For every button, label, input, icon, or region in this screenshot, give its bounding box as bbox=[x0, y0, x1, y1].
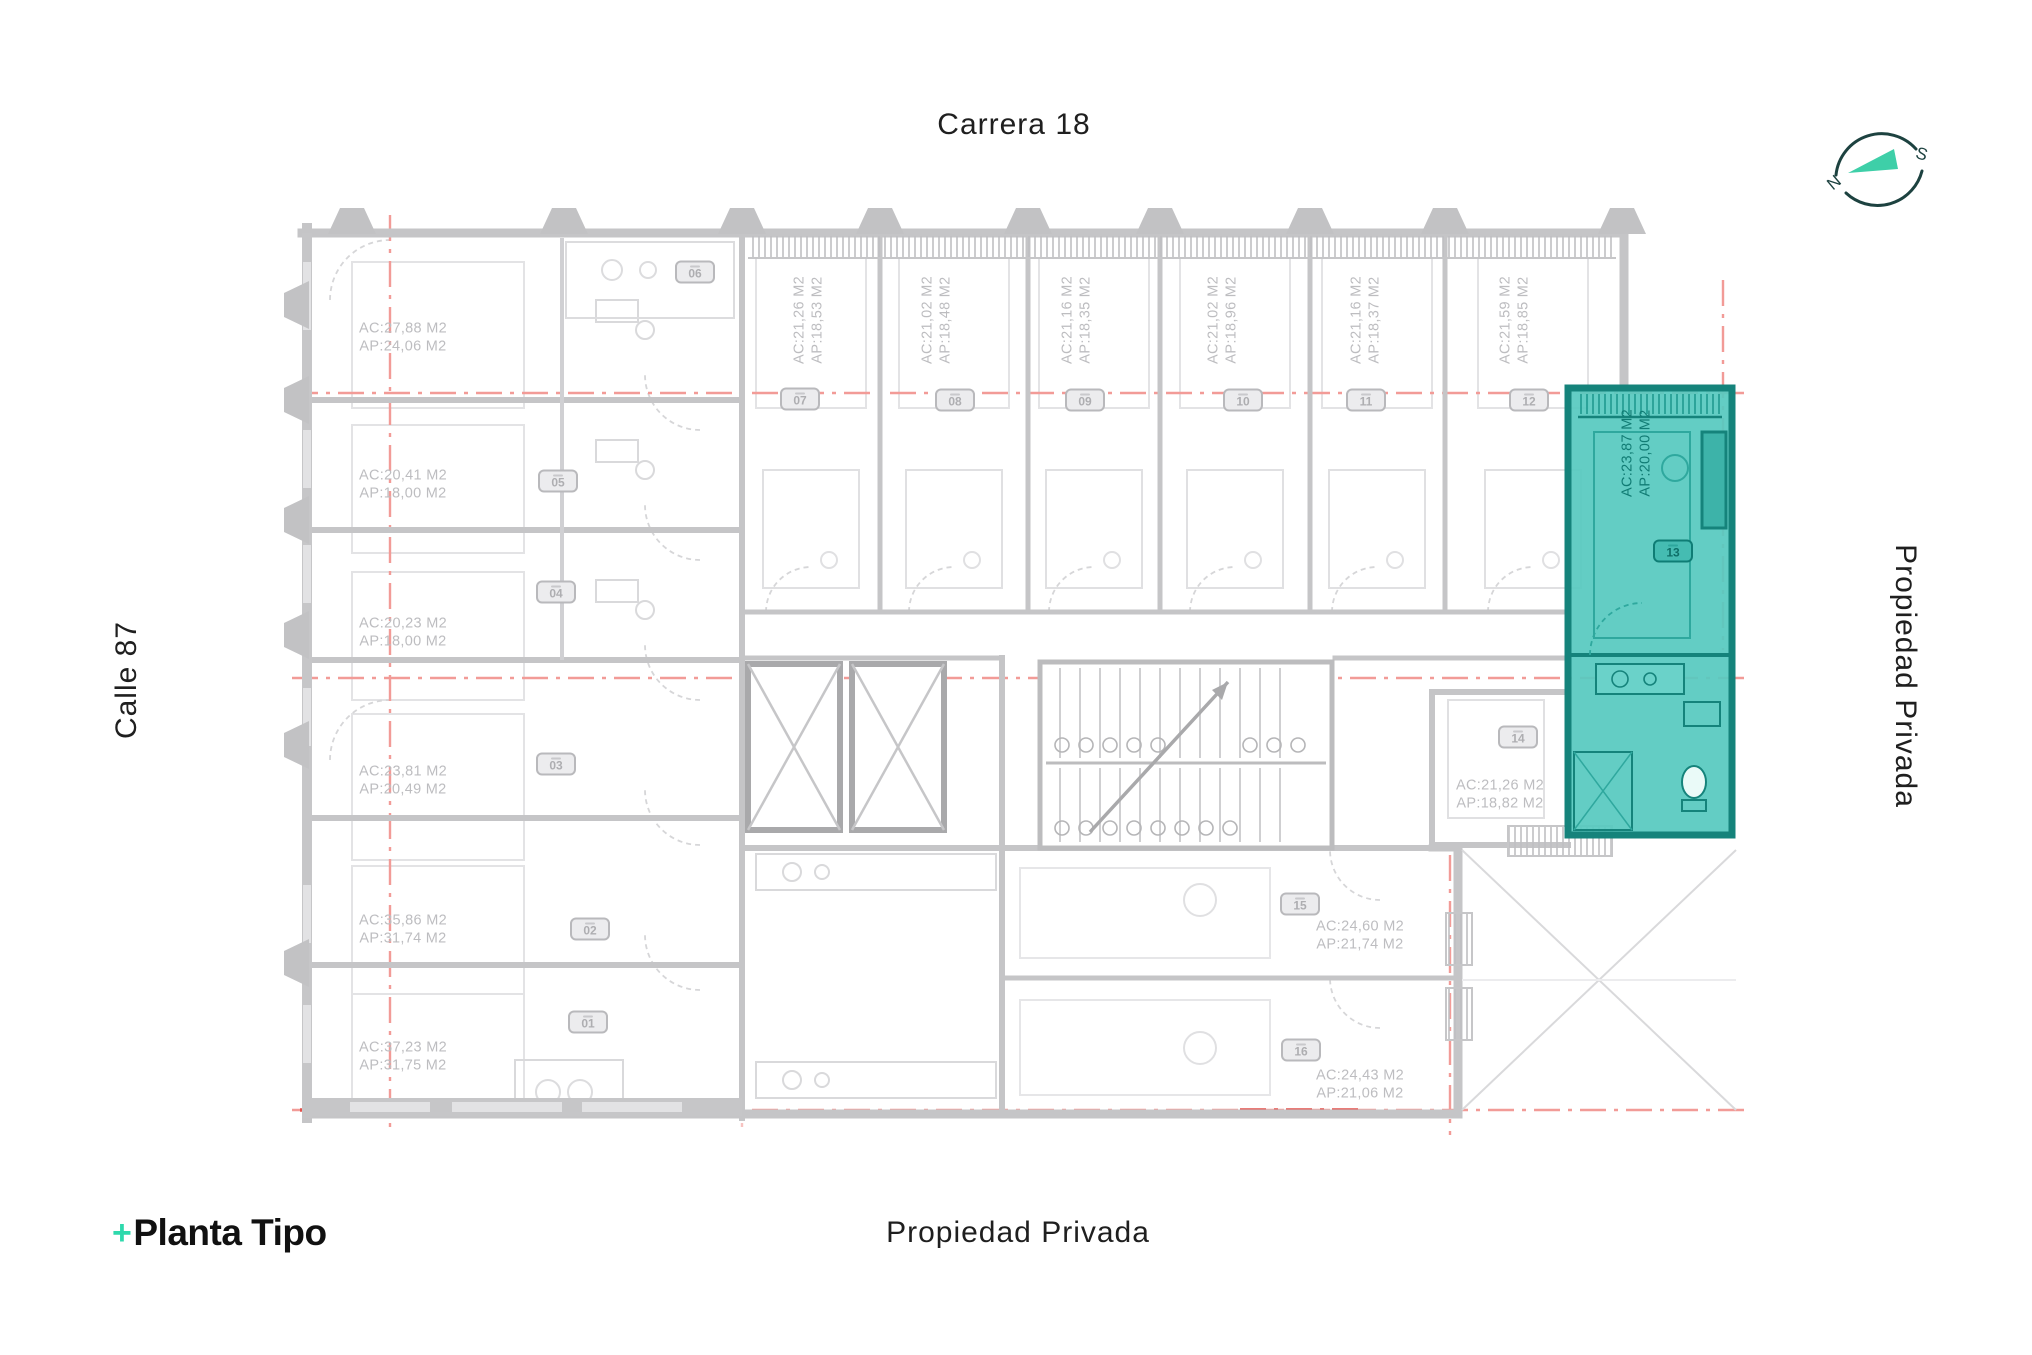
compass-needle bbox=[1848, 149, 1898, 173]
unit-01-areas: AC:37,23 M2AP:31,75 M2 bbox=[359, 1040, 447, 1075]
unit-02-badge[interactable]: 02 bbox=[570, 918, 610, 941]
unit-02-areas: AC:35,86 M2AP:31,74 M2 bbox=[359, 913, 447, 948]
unit-07-areas: AC:21,26 M2AP:18,53 M2 bbox=[792, 276, 827, 364]
unit-12-areas: AC:21,59 M2AP:18,85 M2 bbox=[1498, 276, 1533, 364]
unit-13-region[interactable] bbox=[1561, 381, 1739, 842]
unit-12-badge[interactable]: 12 bbox=[1509, 389, 1549, 412]
unit-08-badge[interactable]: 08 bbox=[935, 389, 975, 412]
void-cross bbox=[1462, 850, 1736, 1110]
unit-05-areas: AC:20,41 M2AP:18,00 M2 bbox=[359, 468, 447, 503]
unit-03-badge[interactable]: 03 bbox=[536, 753, 576, 776]
unit-05-badge[interactable]: 05 bbox=[538, 470, 578, 493]
unit-11-areas: AC:21,16 M2AP:18,37 M2 bbox=[1349, 276, 1384, 364]
floor-plan-page: Carrera 18 Calle 87 Propiedad Privada Pr… bbox=[0, 0, 2032, 1355]
balcony-hatches bbox=[302, 233, 1616, 1118]
unit-14-badge[interactable]: 14 bbox=[1498, 726, 1538, 749]
wall-stubs bbox=[284, 208, 1646, 987]
walls bbox=[302, 228, 1624, 1118]
unit-10-badge[interactable]: 10 bbox=[1223, 389, 1263, 412]
unit-15-areas: AC:24,60 M2AP:21,74 M2 bbox=[1316, 919, 1404, 954]
unit-16-areas: AC:24,43 M2AP:21,06 M2 bbox=[1316, 1068, 1404, 1103]
street-label-right: Propiedad Privada bbox=[1888, 544, 1922, 808]
unit-09-areas: AC:21,16 M2AP:18,35 M2 bbox=[1060, 276, 1095, 364]
unit-14-areas: AC:21,26 M2AP:18,82 M2 bbox=[1456, 778, 1544, 813]
street-label-bottom: Propiedad Privada bbox=[886, 1216, 1150, 1250]
unit-11-badge[interactable]: 11 bbox=[1346, 389, 1386, 412]
brand-logo: + Planta Tipo bbox=[112, 1212, 327, 1254]
unit-09-badge[interactable]: 09 bbox=[1065, 389, 1105, 412]
street-label-top: Carrera 18 bbox=[937, 108, 1090, 142]
unit-08-areas: AC:21,02 M2AP:18,48 M2 bbox=[920, 276, 955, 364]
elevators bbox=[748, 664, 944, 830]
unit-06-areas: AC:27,88 M2AP:24,06 M2 bbox=[359, 321, 447, 356]
unit-04-areas: AC:20,23 M2AP:18,00 M2 bbox=[359, 616, 447, 651]
unit-06-badge[interactable]: 06 bbox=[675, 261, 715, 284]
stairs bbox=[1040, 662, 1332, 848]
unit-15-badge[interactable]: 15 bbox=[1280, 893, 1320, 916]
unit-16-badge[interactable]: 16 bbox=[1281, 1039, 1321, 1062]
plus-icon: + bbox=[112, 1214, 131, 1253]
unit-03-areas: AC:23,81 M2AP:20,49 M2 bbox=[359, 764, 447, 799]
unit-07-badge[interactable]: 07 bbox=[780, 388, 820, 411]
unit-01-badge[interactable]: 01 bbox=[568, 1011, 608, 1034]
street-label-left: Calle 87 bbox=[110, 621, 144, 739]
unit-04-badge[interactable]: 04 bbox=[536, 581, 576, 604]
brand-name: Planta Tipo bbox=[133, 1212, 326, 1254]
compass-icon: N S bbox=[1818, 105, 1938, 225]
compass-west-letter: N bbox=[1823, 171, 1845, 193]
compass-east-letter: S bbox=[1913, 143, 1930, 165]
unit-10-areas: AC:21,02 M2AP:18,96 M2 bbox=[1206, 276, 1241, 364]
